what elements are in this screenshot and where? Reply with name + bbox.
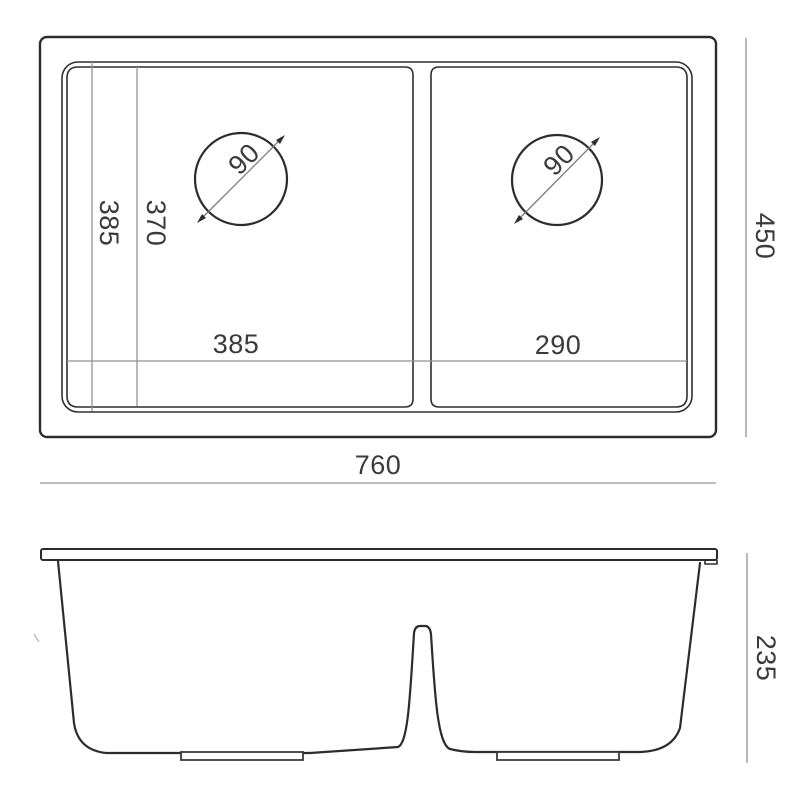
sink-dimension-drawing: 385 370 90 90 385 290 450 760 235 — [0, 0, 800, 794]
stray-mark — [34, 634, 39, 642]
right-foot-pad — [497, 752, 619, 760]
bowl-profile-outline — [58, 561, 700, 753]
overall-width-label: 760 — [355, 450, 402, 480]
bowl-length-outer-label: 385 — [94, 200, 124, 247]
front-rim-bar — [41, 549, 717, 560]
overall-height-label: 235 — [751, 635, 781, 682]
left-bowl-width-label: 385 — [213, 329, 260, 359]
top-view: 385 370 90 90 385 290 450 760 — [40, 37, 780, 483]
left-drain-diameter-label: 90 — [222, 137, 265, 180]
left-foot-pad — [181, 752, 303, 760]
right-bowl-width-label: 290 — [535, 330, 582, 360]
overall-depth-label: 450 — [750, 213, 780, 260]
front-view: 235 — [34, 549, 781, 763]
bowl-length-inner-label: 370 — [141, 200, 171, 247]
right-drain-diameter-label: 90 — [537, 138, 580, 181]
drawing-canvas: 385 370 90 90 385 290 450 760 235 — [0, 0, 800, 794]
